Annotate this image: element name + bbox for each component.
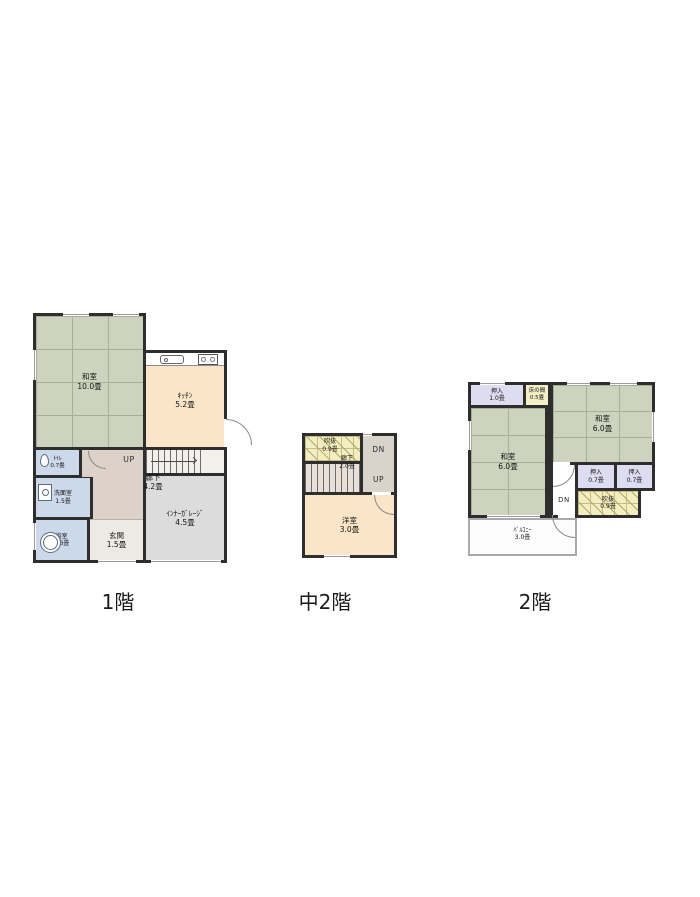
floorplan-image: 和室10.0畳 ｷｯﾁﾝ5.2畳 ﾄｲﾚ0.7畳 UP 廊下4.2畳 bbox=[0, 0, 700, 897]
window-mark bbox=[324, 555, 350, 558]
window-mark bbox=[113, 313, 139, 316]
sink-icon bbox=[160, 355, 184, 364]
window-mark bbox=[652, 412, 655, 442]
floor-plan-m2f: 吹抜0.9畳 廊下2.0畳 DN UP 洋室3.0畳 bbox=[302, 433, 397, 558]
caption-floor-m2: 中2階 bbox=[265, 586, 385, 615]
window-mark bbox=[33, 350, 36, 380]
room-washitsu-left: 和室6.0畳 bbox=[471, 408, 545, 515]
washbasin-icon bbox=[38, 484, 52, 501]
room-washitsu-right: 和室6.0畳 bbox=[553, 385, 652, 462]
room-label-hallway: 廊下2.0畳 bbox=[332, 455, 362, 470]
room-washitsu-10: 和室10.0畳 bbox=[36, 316, 143, 447]
room-tokonoma: 床の間0.5畳 bbox=[526, 385, 548, 405]
window-mark bbox=[480, 382, 505, 385]
door-arc bbox=[226, 419, 252, 445]
window-mark bbox=[567, 382, 590, 385]
window-mark bbox=[363, 433, 372, 436]
stairs-down-label: DN bbox=[553, 496, 575, 504]
garage-door-opening bbox=[151, 560, 221, 563]
room-label-hallway: 廊下4.2畳 bbox=[129, 473, 177, 492]
room-closet-b: 押入0.7畳 bbox=[578, 465, 614, 488]
bathtub-icon bbox=[40, 532, 61, 553]
caption-floor-1: 1階 bbox=[58, 586, 178, 615]
stairs-up-label: UP bbox=[116, 455, 142, 464]
room-kitchen: ｷｯﾁﾝ5.2畳 bbox=[146, 353, 224, 447]
floor-plan-1f: 和室10.0畳 ｷｯﾁﾝ5.2畳 ﾄｲﾚ0.7畳 UP 廊下4.2畳 bbox=[33, 313, 227, 563]
stove-icon bbox=[198, 354, 218, 365]
stairs-up-label: UP bbox=[363, 475, 394, 484]
toilet-icon bbox=[40, 454, 49, 467]
window-mark bbox=[468, 421, 471, 450]
room-void-2f: 吹抜0.9畳 bbox=[578, 491, 638, 515]
room-entrance: 玄関1.5畳 bbox=[90, 520, 143, 560]
balcony-access-opening bbox=[487, 515, 540, 518]
entrance-step-line bbox=[90, 519, 143, 520]
stairs-direction-arrow-icon bbox=[151, 461, 195, 462]
stairs-down-label: DN bbox=[363, 445, 394, 454]
room-label-void: 吹抜0.9畳 bbox=[310, 438, 350, 453]
room-closet-a: 押入1.0畳 bbox=[471, 385, 523, 405]
room-closet-c: 押入0.7畳 bbox=[617, 465, 652, 488]
window-mark bbox=[610, 382, 637, 385]
floor-plan-2f: 押入1.0畳 床の間0.5畳 和室6.0畳 和室6.0畳 DN 押入0.7畳 押… bbox=[468, 382, 655, 558]
caption-floor-2: 2階 bbox=[475, 586, 595, 615]
window-mark bbox=[63, 313, 89, 316]
entrance-door-opening bbox=[98, 560, 136, 563]
window-mark bbox=[33, 523, 36, 550]
